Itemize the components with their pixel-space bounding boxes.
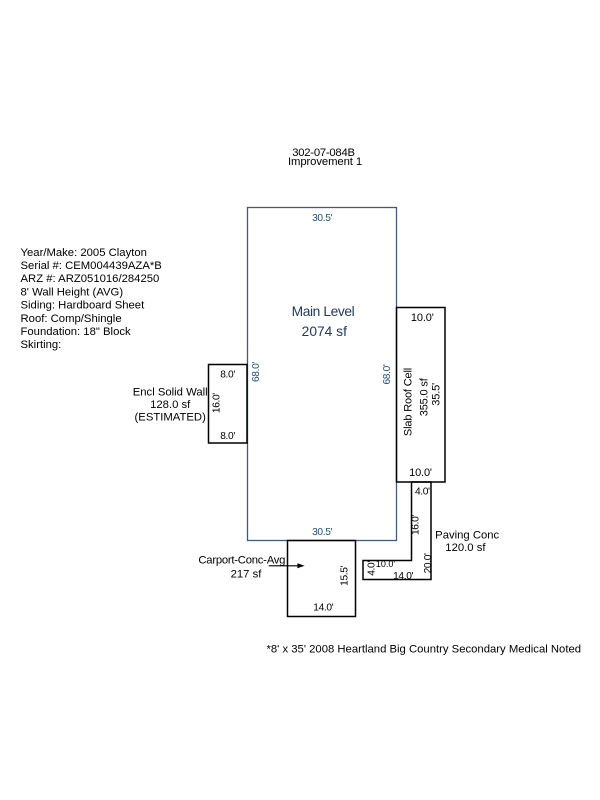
svg-text:Foundation: 18" Block: Foundation: 18" Block	[21, 326, 131, 338]
svg-text:128.0 sf: 128.0 sf	[150, 399, 191, 411]
svg-text:10.0': 10.0'	[411, 312, 434, 324]
svg-text:68.0': 68.0'	[251, 362, 262, 382]
svg-text:Main Level: Main Level	[292, 304, 355, 319]
svg-text:20.0': 20.0'	[423, 553, 434, 573]
svg-text:68.0': 68.0'	[382, 364, 393, 384]
svg-text:14.0': 14.0'	[313, 602, 333, 613]
svg-text:14.0': 14.0'	[393, 571, 413, 582]
svg-text:Carport-Conc-Avg: Carport-Conc-Avg	[198, 554, 285, 566]
svg-text:217 sf: 217 sf	[231, 569, 263, 581]
svg-text:10.0': 10.0'	[376, 559, 396, 569]
svg-text:16.0': 16.0'	[411, 515, 422, 535]
svg-text:355.0 sf: 355.0 sf	[418, 377, 430, 416]
svg-text:Paving Conc: Paving Conc	[435, 529, 499, 541]
svg-text:35.5': 35.5'	[431, 383, 443, 406]
svg-text:8.0': 8.0'	[220, 370, 235, 381]
svg-text:Encl Solid Wall: Encl Solid Wall	[133, 387, 208, 399]
svg-text:*8' x 35' 2008 Heartland Big C: *8' x 35' 2008 Heartland Big Country Sec…	[267, 643, 582, 655]
svg-text:ARZ #: ARZ051016/284250: ARZ #: ARZ051016/284250	[21, 273, 160, 285]
svg-text:Serial #: CEM004439AZA*B: Serial #: CEM004439AZA*B	[21, 260, 162, 272]
svg-text:Roof: Comp/Shingle: Roof: Comp/Shingle	[21, 313, 122, 325]
svg-text:2074 sf: 2074 sf	[302, 324, 347, 339]
svg-text:4.0': 4.0'	[415, 487, 430, 498]
svg-text:10.0': 10.0'	[409, 467, 432, 479]
svg-text:30.5': 30.5'	[312, 527, 332, 538]
svg-text:Improvement 1: Improvement 1	[288, 156, 362, 168]
svg-text:Year/Make: 2005 Clayton: Year/Make: 2005 Clayton	[21, 247, 147, 259]
svg-text:8.0': 8.0'	[220, 431, 235, 442]
svg-text:Slab Roof Cell: Slab Roof Cell	[402, 368, 414, 436]
svg-text:8' Wall Height (AVG): 8' Wall Height (AVG)	[21, 286, 124, 298]
svg-text:30.5': 30.5'	[312, 213, 332, 224]
svg-text:15.5': 15.5'	[340, 565, 351, 585]
svg-text:Siding: Hardboard Sheet: Siding: Hardboard Sheet	[21, 300, 146, 312]
svg-text:(ESTIMATED): (ESTIMATED)	[135, 411, 207, 423]
svg-text:Skirting:: Skirting:	[21, 339, 62, 351]
svg-text:120.0 sf: 120.0 sf	[445, 542, 486, 554]
svg-text:16.0': 16.0'	[212, 393, 223, 413]
